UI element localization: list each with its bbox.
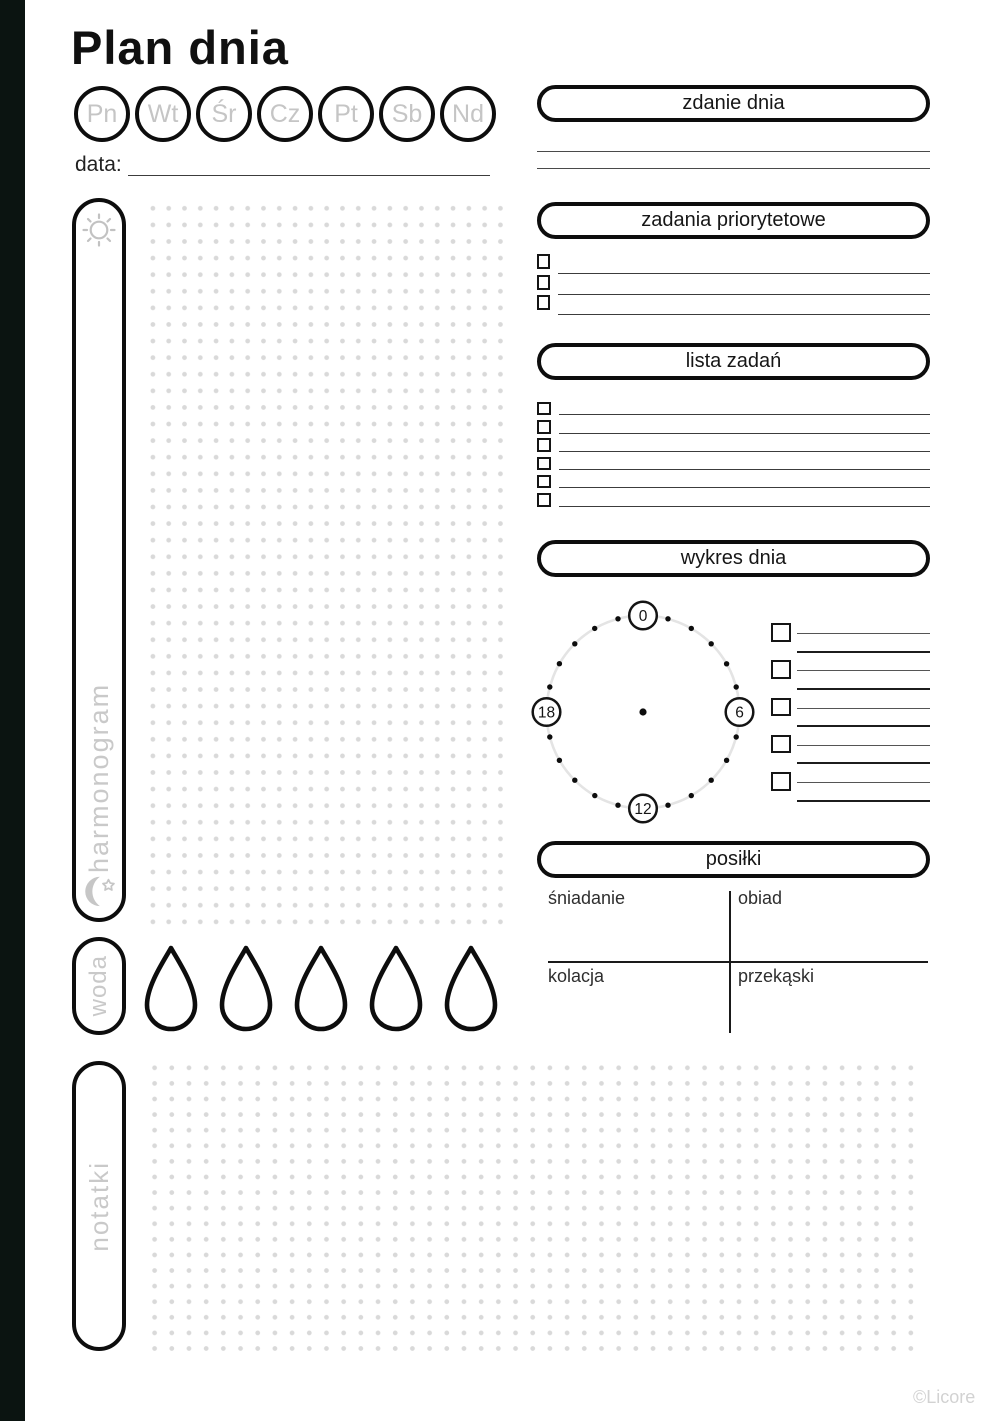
daily-planner-page: Plan dnia PnWtŚrCzPtSbNd data: harmonogr…: [0, 0, 1005, 1421]
chart-legend: [771, 623, 930, 809]
writing-line: [537, 151, 930, 152]
checklist-row: [537, 488, 930, 506]
checkbox[interactable]: [537, 493, 551, 507]
water-panel: woda: [72, 937, 126, 1035]
section-header-sentence: zdanie dnia: [537, 85, 930, 122]
checkbox[interactable]: [537, 295, 550, 310]
checkbox[interactable]: [771, 772, 791, 791]
left-edge-bar: [0, 0, 25, 1421]
day-circle-Wt[interactable]: Wt: [135, 86, 191, 142]
checkbox[interactable]: [537, 402, 551, 416]
day-circles: PnWtŚrCzPtSbNd: [74, 86, 496, 142]
checkbox[interactable]: [537, 438, 551, 452]
chart-legend-row: [771, 735, 930, 772]
writing-line: [797, 688, 930, 690]
schedule-dot-grid[interactable]: [142, 198, 506, 925]
writing-line: [559, 506, 930, 507]
section-header-day-chart: wykres dnia: [537, 540, 930, 577]
svg-text:6: 6: [735, 705, 744, 722]
day-circle-Śr[interactable]: Śr: [196, 86, 252, 142]
notes-panel: notatki: [72, 1061, 126, 1351]
day-clock: 061218: [525, 594, 761, 830]
writing-line: [558, 314, 930, 315]
writing-line: [797, 725, 930, 727]
checkbox[interactable]: [537, 457, 551, 471]
writing-line: [797, 708, 930, 709]
sentence-lines: [537, 151, 930, 186]
chart-legend-row: [771, 698, 930, 735]
meal-label-dinner: kolacja: [548, 966, 604, 987]
sun-icon: [81, 212, 117, 248]
writing-line: [797, 633, 930, 634]
schedule-panel: harmonogram: [72, 198, 126, 922]
copyright: ©Licore: [913, 1387, 975, 1408]
section-title-day-chart: wykres dnia: [681, 547, 787, 570]
date-input-line[interactable]: [128, 175, 490, 176]
chart-legend-row: [771, 623, 930, 660]
checkbox[interactable]: [771, 698, 791, 717]
checklist-row: [537, 415, 930, 433]
checkbox[interactable]: [537, 275, 550, 290]
day-circle-Pn[interactable]: Pn: [74, 86, 130, 142]
checklist-row: [537, 434, 930, 452]
section-header-priority: zadania priorytetowe: [537, 202, 930, 239]
meal-label-breakfast: śniadanie: [548, 888, 625, 909]
writing-line: [797, 651, 930, 653]
priority-rows: [537, 254, 930, 315]
checklist-row: [537, 254, 930, 274]
section-header-meals: posiłki: [537, 841, 930, 878]
page-title: Plan dnia: [71, 20, 289, 75]
writing-line: [537, 168, 930, 169]
notes-dot-grid[interactable]: [142, 1057, 918, 1355]
day-circle-Sb[interactable]: Sb: [379, 86, 435, 142]
writing-line: [797, 800, 930, 802]
checkbox[interactable]: [771, 623, 791, 642]
writing-line: [797, 745, 930, 746]
section-header-tasks: lista zadań: [537, 343, 930, 380]
date-label: data:: [75, 153, 122, 177]
day-circle-Nd[interactable]: Nd: [440, 86, 496, 142]
day-circle-Pt[interactable]: Pt: [318, 86, 374, 142]
meal-label-lunch: obiad: [738, 888, 782, 909]
section-title-priority: zadania priorytetowe: [641, 209, 826, 232]
checklist-row: [537, 452, 930, 470]
section-title-tasks: lista zadań: [686, 350, 782, 373]
writing-line: [797, 670, 930, 671]
svg-text:0: 0: [639, 608, 648, 625]
water-label: woda: [85, 955, 113, 1016]
writing-line: [797, 762, 930, 764]
chart-legend-row: [771, 660, 930, 697]
chart-legend-row: [771, 772, 930, 809]
water-drop-icon[interactable]: [219, 945, 273, 1032]
checkbox[interactable]: [537, 475, 551, 489]
checkbox[interactable]: [771, 660, 791, 679]
water-drop-icon[interactable]: [144, 945, 198, 1032]
checklist-row: [537, 397, 930, 415]
section-title-meals: posiłki: [706, 848, 762, 871]
water-drop-icon[interactable]: [444, 945, 498, 1032]
water-drop-icon[interactable]: [294, 945, 348, 1032]
tasks-rows: [537, 397, 930, 507]
water-drop-icon[interactable]: [369, 945, 423, 1032]
svg-text:12: 12: [634, 801, 651, 818]
checklist-row: [537, 274, 930, 294]
water-drops: [144, 945, 498, 1032]
section-title-sentence: zdanie dnia: [682, 92, 784, 115]
day-circle-Cz[interactable]: Cz: [257, 86, 313, 142]
svg-text:18: 18: [538, 705, 555, 722]
checkbox[interactable]: [771, 735, 791, 754]
checkbox[interactable]: [537, 420, 551, 434]
checkbox[interactable]: [537, 254, 550, 269]
checklist-row: [537, 470, 930, 488]
notes-label: notatki: [84, 1161, 115, 1252]
schedule-label: harmonogram: [84, 248, 115, 873]
meals-divider-horizontal: [548, 961, 928, 963]
writing-line: [797, 782, 930, 783]
moon-star-icon: [80, 873, 118, 909]
meal-label-snacks: przekąski: [738, 966, 814, 987]
checklist-row: [537, 295, 930, 315]
